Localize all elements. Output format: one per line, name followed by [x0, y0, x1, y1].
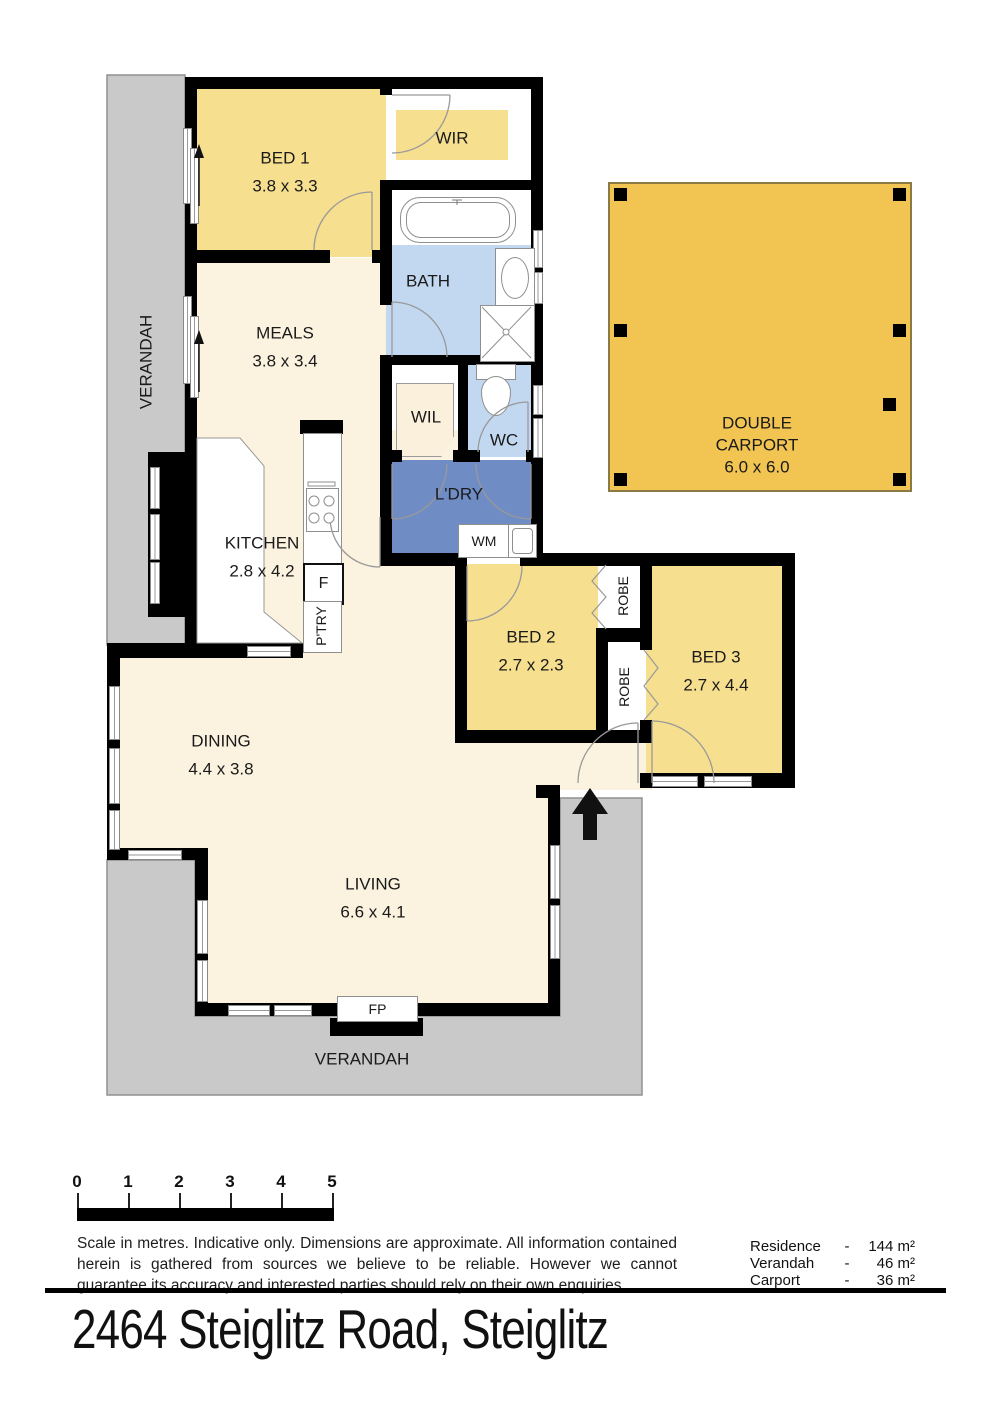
area-value: 46 m² [857, 1255, 915, 1272]
area-value: 144 m² [857, 1238, 915, 1255]
carport-post [614, 188, 627, 201]
laundry-label: L'DRY [435, 486, 483, 503]
page-title: 2464 Steiglitz Road, Steiglitz [72, 1297, 608, 1361]
area-row-carport: Carport - 36 m² [750, 1272, 915, 1289]
area-dash: - [837, 1238, 857, 1255]
scale-tick-label: 0 [72, 1172, 81, 1192]
living-label: LIVING [345, 876, 401, 893]
living-dims: 6.6 x 4.1 [340, 904, 405, 921]
kitchen-label: KITCHEN [225, 535, 300, 552]
area-row-residence: Residence - 144 m² [750, 1238, 915, 1255]
scale-tick [230, 1193, 232, 1209]
area-row-verandah: Verandah - 46 m² [750, 1255, 915, 1272]
carport-dims: 6.0 x 6.0 [724, 459, 789, 476]
carport-post [893, 188, 906, 201]
divider-rule [45, 1288, 946, 1293]
area-name: Carport [750, 1272, 837, 1289]
bed3-label: BED 3 [691, 649, 740, 666]
scale-tick [179, 1193, 181, 1209]
bed3-dims: 2.7 x 4.4 [683, 677, 748, 694]
scale-tick [281, 1193, 283, 1209]
scale-tick [128, 1193, 130, 1209]
carport-post [893, 324, 906, 337]
scale-tick [77, 1193, 79, 1209]
bed2-dims: 2.7 x 2.3 [498, 657, 563, 674]
kitchen-dims: 2.8 x 4.2 [229, 563, 294, 580]
wil-label: WIL [411, 409, 441, 426]
area-value: 36 m² [857, 1272, 915, 1289]
robe-bottom-label: ROBE [617, 667, 631, 707]
cooktop-burners [308, 482, 335, 523]
bath-label: BATH [406, 273, 450, 290]
scale-tick-label: 1 [123, 1172, 132, 1192]
verandah-bottom-label: VERANDAH [315, 1051, 409, 1068]
floor-plan: FP WM F [0, 0, 992, 1403]
carport-post [883, 398, 896, 411]
carport-post [614, 473, 627, 486]
scale-tick [332, 1193, 334, 1209]
area-name: Residence [750, 1238, 837, 1255]
verandah-left-label: VERANDAH [138, 315, 155, 409]
meals-dims: 3.8 x 3.4 [252, 353, 317, 370]
scale-tick-label: 3 [225, 1172, 234, 1192]
scale-tick-label: 5 [327, 1172, 336, 1192]
scale-tick-label: 2 [174, 1172, 183, 1192]
bed1-label: BED 1 [260, 150, 309, 167]
carport-post [614, 324, 627, 337]
disclaimer-text: Scale in metres. Indicative only. Dimens… [77, 1233, 677, 1296]
dining-label: DINING [191, 733, 251, 750]
scale-tick-label: 4 [276, 1172, 285, 1192]
carport-post [893, 473, 906, 486]
sliding-door-arrow-icon [194, 144, 204, 392]
area-name: Verandah [750, 1255, 837, 1272]
dining-dims: 4.4 x 3.8 [188, 761, 253, 778]
bed1-dims: 3.8 x 3.3 [252, 178, 317, 195]
bathtub-tap [452, 200, 462, 205]
wir-label: WIR [435, 130, 468, 147]
carport-label-line2: CARPORT [716, 437, 799, 454]
carport-label-line1: DOUBLE [722, 415, 792, 432]
shower-lines [482, 307, 531, 358]
pantry-label: P'TRY [314, 606, 328, 646]
robe-top-label: ROBE [616, 576, 630, 616]
wc-label: WC [490, 432, 518, 449]
area-dash: - [837, 1255, 857, 1272]
entry-arrow-icon [572, 788, 608, 840]
bed2-label: BED 2 [506, 629, 555, 646]
meals-label: MEALS [256, 325, 314, 342]
area-dash: - [837, 1272, 857, 1289]
scale-bar-rect [77, 1208, 334, 1221]
